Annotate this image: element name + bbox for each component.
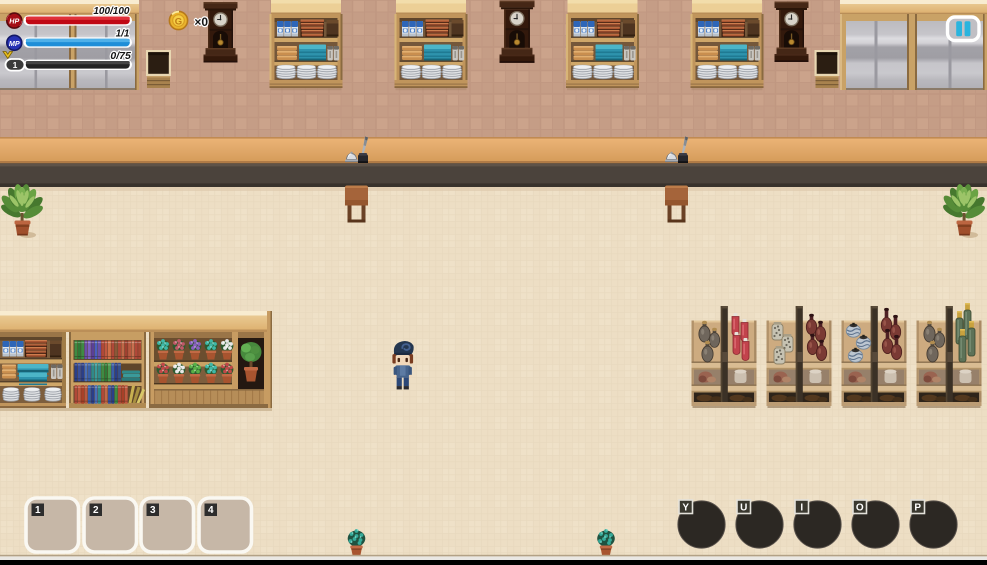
- svg-text:1/1: 1/1: [116, 29, 130, 40]
- svg-text:1: 1: [13, 60, 18, 70]
- svg-text:×0: ×0: [194, 15, 208, 29]
- svg-text:3: 3: [150, 505, 156, 516]
- svg-text:G: G: [175, 16, 182, 27]
- svg-text:O: O: [856, 503, 864, 514]
- svg-text:P: P: [914, 503, 921, 514]
- svg-text:HP: HP: [9, 17, 19, 26]
- svg-text:1: 1: [35, 505, 41, 516]
- svg-text:2: 2: [93, 505, 99, 516]
- svg-text:Y: Y: [682, 503, 689, 514]
- svg-text:U: U: [740, 503, 747, 514]
- svg-text:I: I: [800, 503, 803, 514]
- svg-text:MP: MP: [9, 39, 20, 48]
- svg-text:100/100: 100/100: [93, 6, 130, 17]
- svg-text:4: 4: [208, 505, 214, 516]
- svg-text:0/75: 0/75: [110, 50, 131, 62]
